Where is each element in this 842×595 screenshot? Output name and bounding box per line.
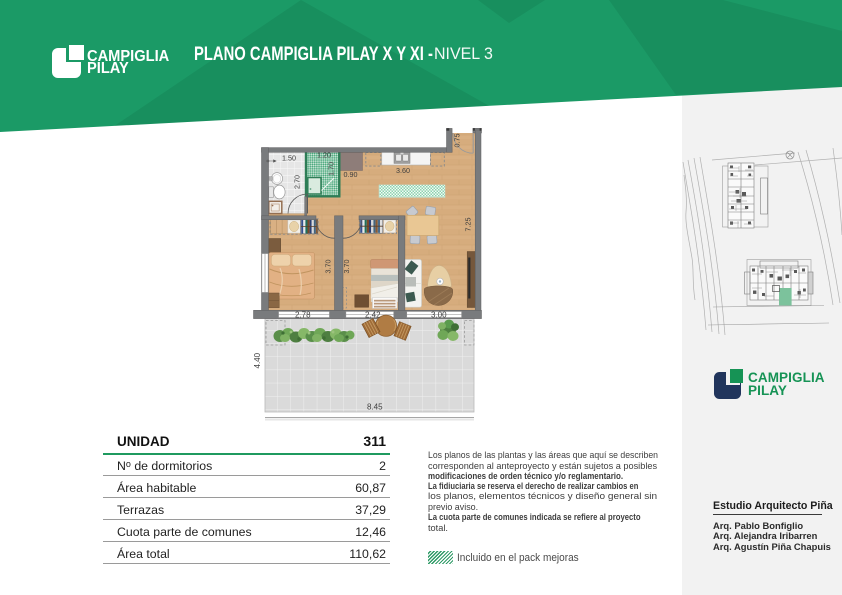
svg-text:1.20: 1.20 bbox=[317, 151, 331, 160]
svg-text:4.40: 4.40 bbox=[253, 352, 262, 368]
svg-text:2.70: 2.70 bbox=[293, 175, 302, 189]
svg-text:3.00: 3.00 bbox=[431, 310, 447, 319]
svg-text:7.25: 7.25 bbox=[464, 218, 473, 232]
svg-text:0.75: 0.75 bbox=[453, 134, 462, 148]
svg-text:2.42: 2.42 bbox=[365, 310, 381, 319]
svg-text:3.70: 3.70 bbox=[324, 260, 333, 274]
svg-text:1.70: 1.70 bbox=[327, 162, 336, 176]
svg-text:0.90: 0.90 bbox=[344, 170, 358, 179]
svg-text:8.45: 8.45 bbox=[367, 403, 383, 412]
svg-text:2.78: 2.78 bbox=[295, 310, 311, 319]
svg-text:1.50: 1.50 bbox=[282, 154, 296, 163]
svg-text:3.70: 3.70 bbox=[342, 260, 351, 274]
svg-text:3.60: 3.60 bbox=[396, 166, 410, 175]
